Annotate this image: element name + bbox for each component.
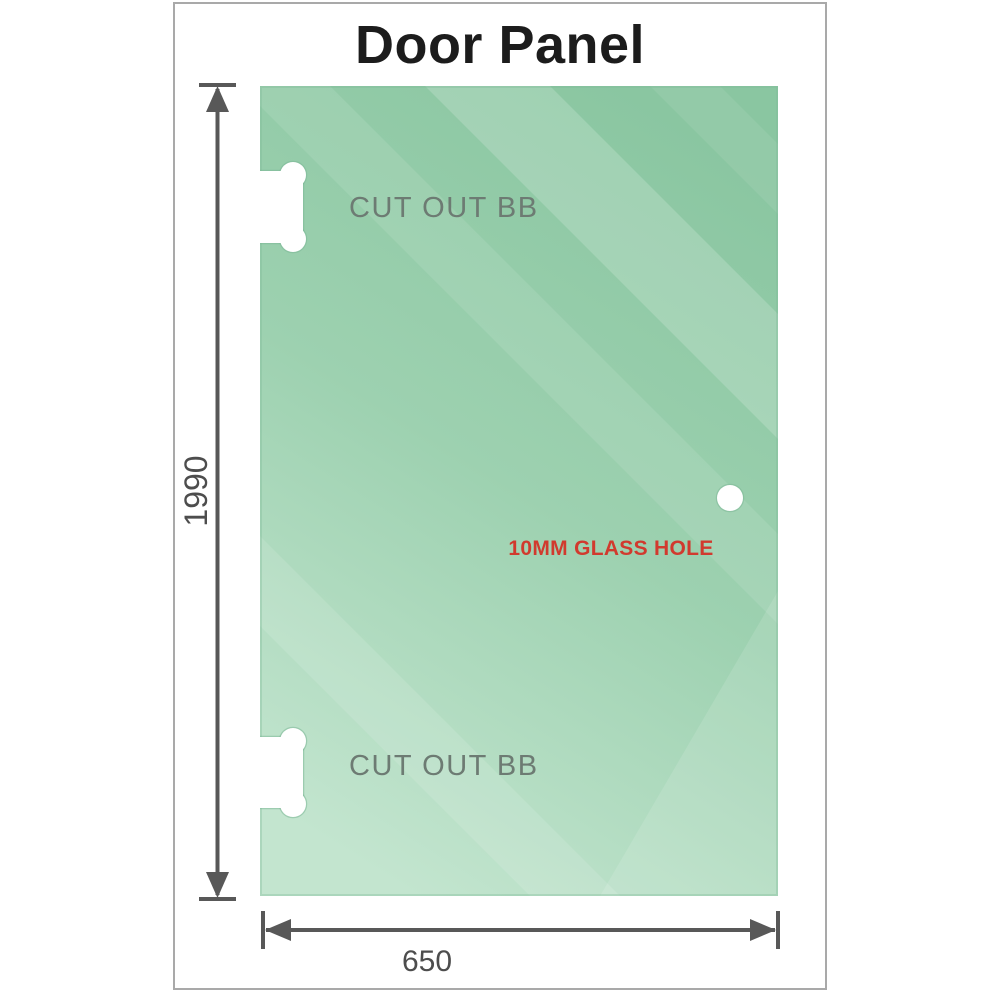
height-dimension-label: 1990 — [179, 431, 213, 551]
cutout-label-bottom: CUT OUT BB — [349, 747, 609, 785]
width-dimension-arrow — [261, 911, 780, 949]
hinge-cutout-top — [260, 162, 306, 252]
width-dimension-label: 650 — [367, 945, 487, 979]
hinge-cutout-bottom — [260, 728, 306, 817]
glass-hole — [717, 485, 743, 511]
diagram-frame: Door Panel — [173, 2, 827, 990]
door-panel: CUT OUT BB CUT OUT BB 10MM GLASS HOLE — [260, 86, 778, 896]
diagram-canvas: Door Panel — [0, 0, 1000, 1000]
cutout-label-top: CUT OUT BB — [349, 189, 609, 227]
glass-hole-label: 10MM GLASS HOLE — [500, 536, 722, 562]
diagram-title: Door Panel — [175, 14, 825, 76]
